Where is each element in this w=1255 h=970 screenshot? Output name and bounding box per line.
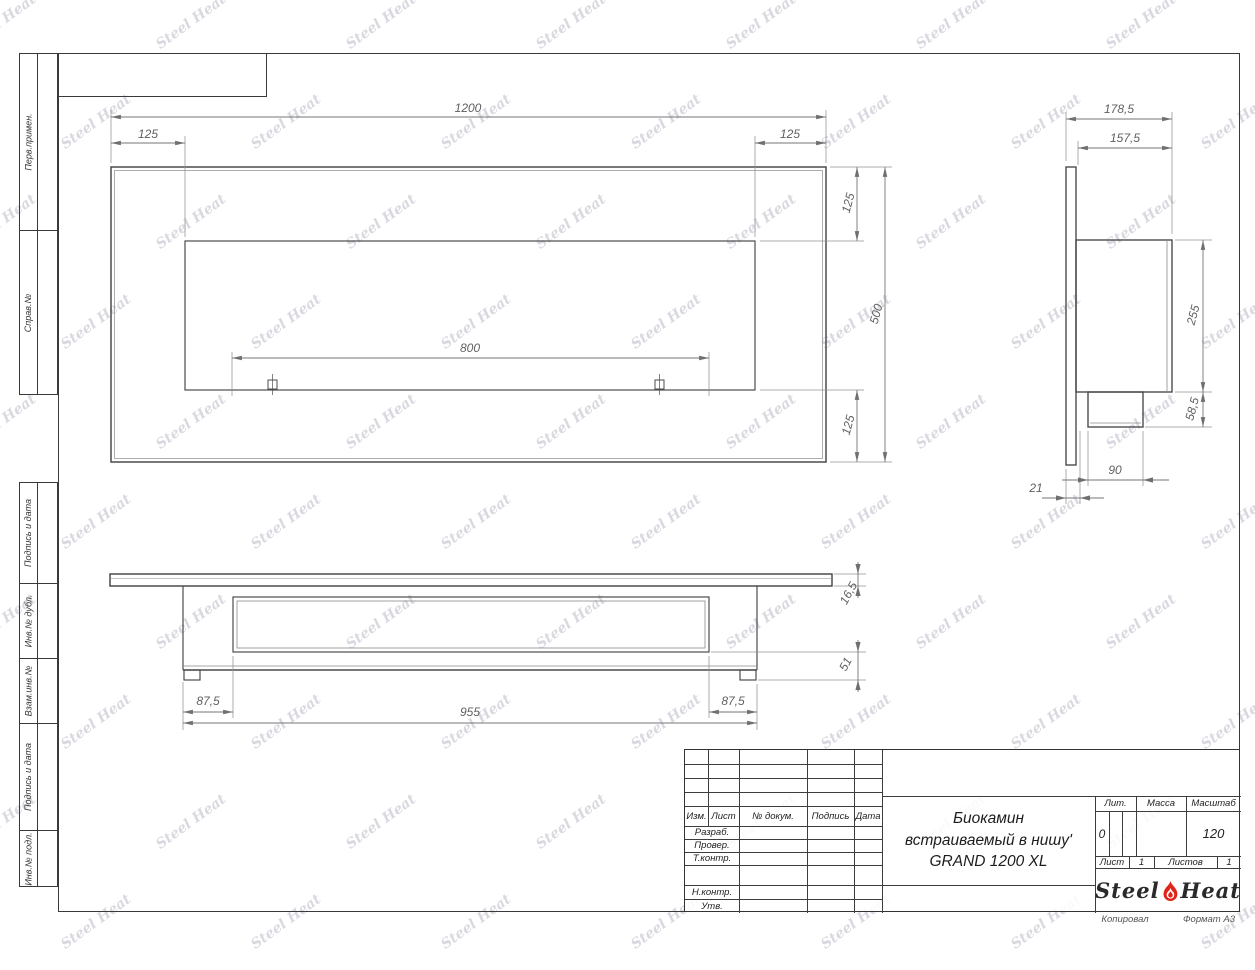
product-title-line3: GRAND 1200 XL bbox=[929, 851, 1047, 872]
flame-icon bbox=[1162, 877, 1179, 905]
dim-side-tray-height: 58,5 bbox=[1182, 396, 1202, 422]
scale-label: Масштаб bbox=[1186, 796, 1241, 811]
strip-label-cell: Взам.инв.№ bbox=[20, 659, 38, 723]
sheet-label: Лист bbox=[1095, 856, 1129, 868]
strip-cell: Инв.№ дубл. bbox=[20, 584, 59, 659]
strip-cell: Инв.№ подл. bbox=[20, 831, 59, 886]
dim-front-offset-top: 125 bbox=[839, 191, 858, 214]
left-strip-upper: Перв.примен. Справ.№ bbox=[19, 53, 58, 395]
strip-label: Инв.№ подл. bbox=[24, 832, 34, 885]
scale-value: 120 bbox=[1186, 811, 1241, 856]
dim-front-burner-width: 800 bbox=[460, 341, 480, 355]
dim-front-total-height: 500 bbox=[867, 302, 886, 325]
format-label: Формат А3 bbox=[1178, 914, 1240, 925]
row-label-developed: Разраб. bbox=[685, 826, 739, 839]
title-block: Изм. Лист № докум. Подпись Дата Разраб. … bbox=[684, 749, 1240, 912]
dim-front-offset-left: 125 bbox=[138, 127, 158, 141]
dim-side-body-height: 255 bbox=[1184, 303, 1203, 327]
brand-logo: Steel Heat bbox=[1095, 868, 1241, 913]
drawing-sheet: Steel HeatSteel HeatSteel HeatSteel Heat… bbox=[0, 0, 1255, 970]
side-view: 178,5 157,5 255 58,5 90 21 bbox=[1028, 102, 1212, 504]
copied-label: Копировал bbox=[1080, 914, 1170, 925]
strip-cell: Справ.№ bbox=[20, 231, 59, 395]
sheets-label: Листов bbox=[1154, 856, 1217, 868]
dim-plan-inset-left: 87,5 bbox=[196, 694, 220, 708]
strip-label-cell: Перв.примен. bbox=[20, 54, 38, 230]
row-label-ncontrol: Н.контр. bbox=[685, 886, 739, 899]
brand-word-heat: Heat bbox=[1180, 878, 1241, 903]
product-title-line2: встраиваемый в нишу' bbox=[905, 830, 1072, 851]
dim-plan-rear-height: 51 bbox=[836, 655, 855, 673]
strip-cell: Подпись и дата bbox=[20, 724, 59, 831]
top-designation-cell bbox=[58, 53, 267, 97]
strip-cell: Взам.инв.№ bbox=[20, 659, 59, 724]
strip-cell: Перв.примен. bbox=[20, 54, 59, 231]
product-title: Биокамин встраиваемый в нишу' GRAND 1200… bbox=[882, 796, 1095, 885]
brand-word-steel: Steel bbox=[1095, 878, 1160, 903]
dim-front-offset-bottom: 125 bbox=[839, 413, 858, 436]
strip-label: Перв.примен. bbox=[24, 113, 34, 170]
dim-side-body-depth: 157,5 bbox=[1110, 131, 1140, 145]
strip-label: Справ.№ bbox=[24, 294, 34, 332]
dim-side-total-depth: 178,5 bbox=[1104, 102, 1134, 116]
col-header-izm: Изм. bbox=[685, 806, 708, 826]
row-label-tcontrol: Т.контр. bbox=[685, 852, 739, 865]
strip-label: Подпись и дата bbox=[24, 499, 34, 567]
left-strip-lower: Подпись и дата Инв.№ дубл. Взам.инв.№ По… bbox=[19, 482, 58, 887]
col-header-date: Дата bbox=[854, 806, 882, 826]
strip-label: Подпись и дата bbox=[24, 743, 34, 811]
col-header-docnum: № докум. bbox=[739, 806, 807, 826]
plan-view: 87,5 87,5 955 16,5 51 bbox=[110, 562, 866, 730]
dim-plan-body-length: 955 bbox=[460, 705, 480, 719]
strip-label-cell: Подпись и дата bbox=[20, 724, 38, 830]
strip-label-cell: Справ.№ bbox=[20, 231, 38, 395]
dim-front-total-width: 1200 bbox=[455, 101, 482, 115]
lit-label: Лит. bbox=[1095, 796, 1136, 811]
sheets-value: 1 bbox=[1217, 856, 1241, 868]
row-label-checked: Провер. bbox=[685, 839, 739, 852]
dim-side-flange-gap: 21 bbox=[1028, 481, 1042, 495]
strip-label-cell: Инв.№ дубл. bbox=[20, 584, 38, 658]
strip-label: Взам.инв.№ bbox=[24, 666, 34, 717]
strip-cell: Подпись и дата bbox=[20, 483, 59, 584]
dim-side-tray-width: 90 bbox=[1108, 463, 1122, 477]
product-title-line1: Биокамин bbox=[953, 808, 1024, 829]
sheet-value: 1 bbox=[1129, 856, 1154, 868]
strip-label-cell: Инв.№ подл. bbox=[20, 831, 38, 886]
col-header-signature: Подпись bbox=[807, 806, 854, 826]
lit-value: 0 bbox=[1095, 811, 1109, 856]
col-header-list: Лист bbox=[708, 806, 739, 826]
mass-value bbox=[1136, 811, 1186, 856]
mass-label: Масса bbox=[1136, 796, 1186, 811]
dim-front-offset-right: 125 bbox=[780, 127, 800, 141]
strip-label: Инв.№ дубл. bbox=[24, 595, 34, 648]
strip-label-cell: Подпись и дата bbox=[20, 483, 38, 583]
dim-plan-inset-right: 87,5 bbox=[721, 694, 745, 708]
front-view: 1200 125 125 800 125 500 125 bbox=[111, 101, 892, 462]
row-label-approved: Утв. bbox=[685, 899, 739, 913]
